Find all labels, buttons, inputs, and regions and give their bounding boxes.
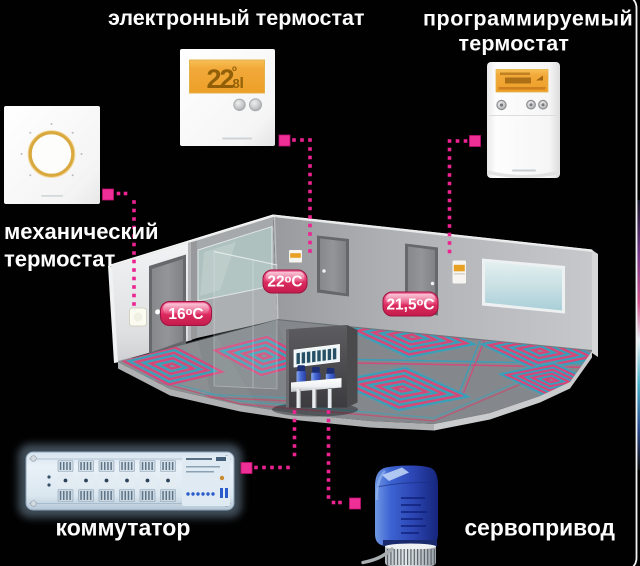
svg-text:термостат: термостат xyxy=(4,247,116,272)
svg-text:термостат: термостат xyxy=(459,32,570,56)
svg-text:o: o xyxy=(232,64,237,73)
svg-text:21,5oC: 21,5oC xyxy=(386,297,434,314)
svg-text:механический: механический xyxy=(4,219,159,244)
svg-text:22: 22 xyxy=(207,64,234,94)
svg-text:коммутатор: коммутатор xyxy=(56,515,191,541)
svg-text:программируемый: программируемый xyxy=(423,7,633,31)
svg-text:сервопривод: сервопривод xyxy=(465,515,616,541)
svg-text:электронный термостат: электронный термостат xyxy=(108,6,365,30)
svg-text:8: 8 xyxy=(233,76,240,91)
